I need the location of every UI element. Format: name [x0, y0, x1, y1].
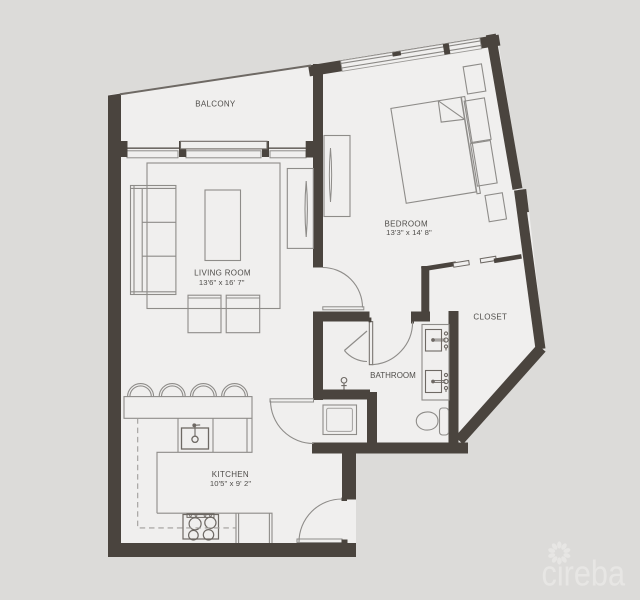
- svg-text:cireba: cireba: [542, 553, 626, 594]
- svg-text:LIVING ROOM: LIVING ROOM: [194, 269, 251, 278]
- svg-text:13'3" x 14' 8": 13'3" x 14' 8": [386, 228, 432, 237]
- svg-text:BATHROOM: BATHROOM: [370, 371, 416, 380]
- svg-text:CLOSET: CLOSET: [473, 313, 507, 322]
- svg-text:13'6" x 16' 7": 13'6" x 16' 7": [199, 278, 245, 287]
- svg-text:10'5" x 9' 2": 10'5" x 9' 2": [210, 479, 251, 488]
- svg-text:BALCONY: BALCONY: [195, 100, 236, 109]
- svg-text:KITCHEN: KITCHEN: [212, 470, 249, 479]
